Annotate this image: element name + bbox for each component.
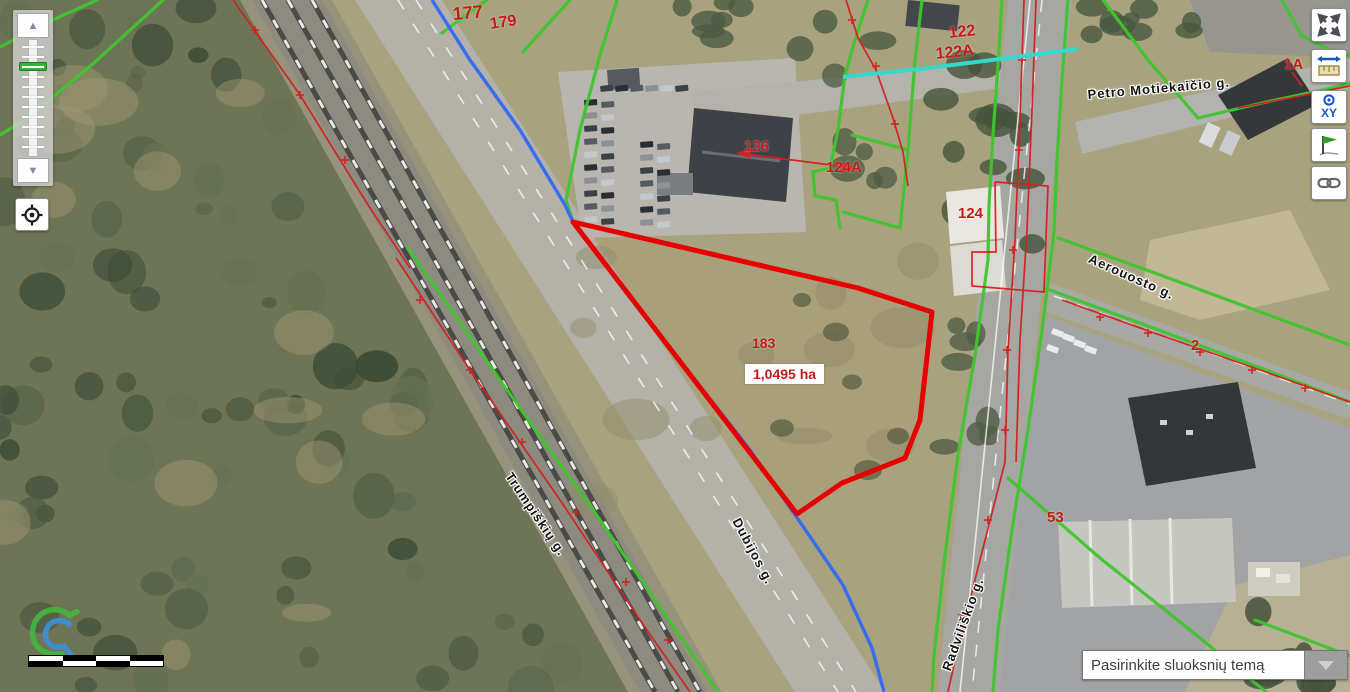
xy-icon: XY bbox=[1316, 93, 1342, 121]
zoom-tick bbox=[22, 126, 44, 128]
flag-button[interactable] bbox=[1311, 128, 1347, 162]
parcel-number-label: 53 bbox=[1047, 510, 1064, 525]
zoom-tick bbox=[22, 76, 44, 78]
zoom-tick bbox=[22, 56, 44, 58]
zoom-tick bbox=[22, 136, 44, 138]
zoom-tick bbox=[22, 116, 44, 118]
roof-vent bbox=[1186, 430, 1193, 435]
roof-line bbox=[1090, 520, 1092, 606]
parcel-number-label: 177 bbox=[452, 2, 484, 23]
pallet bbox=[1276, 574, 1290, 583]
map-viewer: 177179122122A126124A1241A253Petro Motiek… bbox=[0, 0, 1350, 692]
coordinates-button[interactable]: XY bbox=[1311, 90, 1347, 124]
roof-vent bbox=[1206, 414, 1213, 419]
zoom-in-button[interactable]: ▲ bbox=[17, 13, 49, 38]
zoom-out-icon: ▼ bbox=[28, 165, 39, 177]
regia-logo bbox=[22, 598, 86, 660]
locate-icon bbox=[20, 203, 44, 227]
locate-button[interactable] bbox=[15, 198, 49, 231]
roof-vent bbox=[1160, 420, 1167, 425]
measure-icon bbox=[1316, 53, 1342, 79]
parcel-number-label: 124 bbox=[958, 206, 983, 221]
chevron-down-icon bbox=[1318, 661, 1334, 670]
zoom-tick bbox=[22, 46, 44, 48]
measure-button[interactable] bbox=[1311, 49, 1347, 83]
parcel-number-label: 126 bbox=[744, 139, 769, 154]
layer-theme-select[interactable]: Pasirinkite sluoksnių temą bbox=[1082, 650, 1348, 680]
roof-line bbox=[1170, 518, 1172, 604]
parcel-number-label: 122 bbox=[948, 23, 976, 42]
parcel-area-label: 1,0495 ha bbox=[745, 364, 824, 384]
parcel-number-label: 124A bbox=[826, 160, 862, 175]
flag-icon bbox=[1316, 132, 1342, 158]
zoom-slider[interactable] bbox=[17, 40, 49, 156]
zoom-tick bbox=[22, 96, 44, 98]
zoom-control: ▲ ▼ bbox=[13, 10, 53, 186]
link-button[interactable] bbox=[1311, 166, 1347, 200]
parcel-number-label: 2 bbox=[1191, 338, 1199, 353]
layer-theme-select-value: Pasirinkite sluoksnių temą bbox=[1083, 651, 1304, 679]
roof-line bbox=[1130, 519, 1132, 605]
fullscreen-button[interactable] bbox=[1311, 8, 1347, 42]
map-canvas[interactable] bbox=[0, 0, 1350, 692]
zoom-out-button[interactable]: ▼ bbox=[17, 158, 49, 183]
zoom-tick bbox=[22, 146, 44, 148]
fullscreen-icon bbox=[1317, 13, 1341, 37]
zoom-tick bbox=[22, 86, 44, 88]
selected-parcel-number-label: 183 bbox=[752, 336, 775, 350]
pallet bbox=[1256, 568, 1270, 577]
pallet-stacks bbox=[1248, 562, 1300, 596]
link-icon bbox=[1316, 170, 1342, 196]
scale-bar bbox=[28, 655, 164, 667]
zoom-tick bbox=[22, 66, 44, 68]
zoom-tick bbox=[22, 106, 44, 108]
svg-text:XY: XY bbox=[1321, 106, 1337, 120]
parcel-number-label: 1A bbox=[1284, 57, 1303, 72]
layer-theme-select-button[interactable] bbox=[1304, 651, 1347, 679]
zoom-in-icon: ▲ bbox=[28, 20, 39, 32]
